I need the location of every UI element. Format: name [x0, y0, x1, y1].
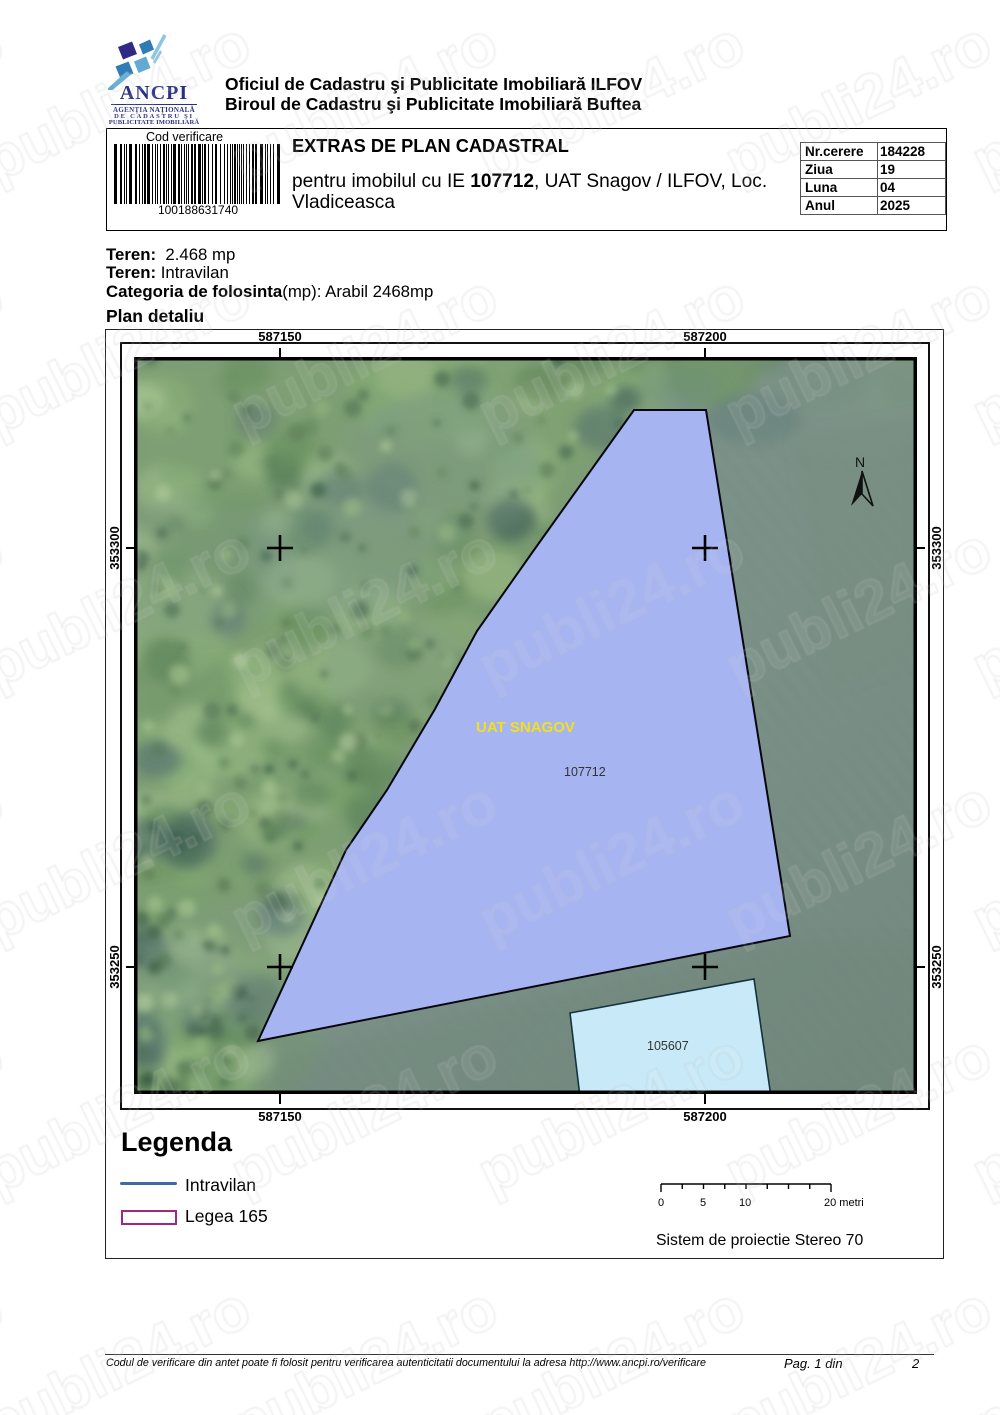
- svg-text:10: 10: [739, 1197, 751, 1208]
- svg-text:publi24.ro: publi24.ro: [0, 1021, 14, 1207]
- svg-text:publi24.ro: publi24.ro: [961, 262, 1000, 448]
- svg-text:353250: 353250: [107, 945, 122, 988]
- svg-text:353300: 353300: [929, 526, 944, 569]
- svg-text:105607: 105607: [647, 1039, 689, 1053]
- svg-text:107712: 107712: [564, 765, 606, 779]
- svg-text:publi24.ro: publi24.ro: [961, 515, 1000, 701]
- svg-text:publi24.ro: publi24.ro: [467, 1274, 754, 1415]
- svg-text:publi24.ro: publi24.ro: [0, 515, 14, 701]
- svg-text:publi24.ro: publi24.ro: [0, 1274, 261, 1415]
- svg-text:20 metri: 20 metri: [824, 1197, 864, 1208]
- svg-text:publi24.ro: publi24.ro: [0, 9, 14, 195]
- svg-text:publi24.ro: publi24.ro: [961, 9, 1000, 195]
- svg-text:publi24.ro: publi24.ro: [961, 768, 1000, 954]
- svg-text:publi24.ro: publi24.ro: [0, 768, 14, 954]
- svg-text:353250: 353250: [929, 945, 944, 988]
- svg-text:publi24.ro: publi24.ro: [220, 1274, 507, 1415]
- svg-text:publi24.ro: publi24.ro: [961, 1021, 1000, 1207]
- svg-text:UAT SNAGOV: UAT SNAGOV: [476, 719, 575, 736]
- svg-text:publi24.ro: publi24.ro: [961, 1274, 1000, 1415]
- svg-text:5: 5: [700, 1197, 706, 1208]
- svg-text:publi24.ro: publi24.ro: [714, 1274, 1000, 1415]
- svg-text:publi24.ro: publi24.ro: [0, 262, 14, 448]
- svg-text:0: 0: [658, 1197, 664, 1208]
- svg-text:353300: 353300: [107, 526, 122, 569]
- svg-text:N: N: [855, 454, 865, 470]
- svg-text:publi24.ro: publi24.ro: [0, 1274, 14, 1415]
